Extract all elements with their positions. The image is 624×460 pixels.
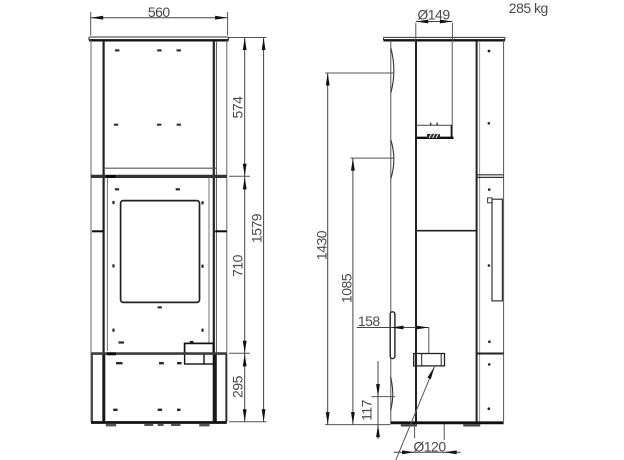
svg-text:1085: 1085 xyxy=(339,273,355,303)
svg-text:560: 560 xyxy=(148,4,171,20)
svg-text:Ø120: Ø120 xyxy=(413,439,446,455)
svg-text:295: 295 xyxy=(230,375,246,398)
svg-text:158: 158 xyxy=(358,313,381,329)
svg-text:285 kg: 285 kg xyxy=(509,0,548,16)
svg-text:710: 710 xyxy=(229,254,245,277)
svg-text:574: 574 xyxy=(230,96,246,119)
svg-text:1430: 1430 xyxy=(314,230,330,260)
svg-text:117: 117 xyxy=(359,399,375,421)
svg-text:1579: 1579 xyxy=(248,213,264,243)
svg-text:Ø149: Ø149 xyxy=(417,6,450,22)
